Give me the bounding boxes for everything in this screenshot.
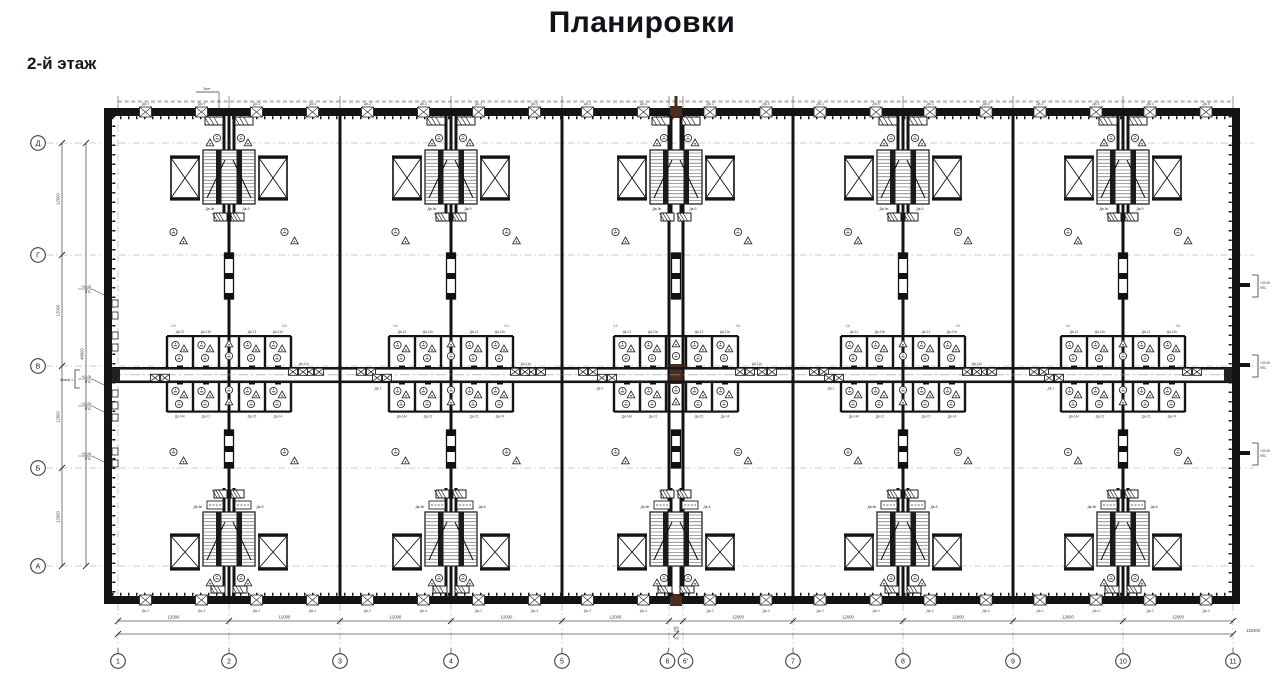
sanitary-partition — [486, 383, 488, 412]
left-bracket-label: Зумпф-1 — [60, 378, 73, 382]
sanitary-partition — [685, 336, 687, 367]
top-door-tag: Дв-5 — [1092, 102, 1099, 106]
riser-band — [672, 273, 681, 279]
room-tag-circle-icon — [492, 387, 499, 394]
room-tag-circle-icon — [921, 400, 928, 407]
category-triangle-icon — [880, 345, 888, 352]
hatched-box — [453, 490, 466, 498]
hatched-box — [214, 213, 227, 221]
sanitary-partition — [440, 336, 442, 367]
sanitary-wall-top — [1061, 335, 1185, 337]
category-triangle-icon — [699, 345, 707, 352]
category-triangle-icon — [854, 457, 862, 464]
left-wall-niche — [112, 300, 118, 307]
triangle-dot — [450, 402, 452, 404]
triangle-dot — [209, 143, 211, 145]
room-tag-circle-icon — [244, 341, 251, 348]
room-tag-circle-icon — [495, 400, 502, 407]
column-axis-label: 10 — [1119, 659, 1127, 666]
room-tag-circle-icon — [1141, 400, 1148, 407]
category-triangle-icon — [244, 579, 252, 586]
row-axis-label: Г — [36, 253, 40, 260]
sanitary-partition — [866, 383, 868, 412]
room-tag-circle-icon — [201, 354, 208, 361]
row-bay-dimension: 12000 — [56, 193, 61, 205]
stair-door-tag: Дв-8п — [194, 505, 203, 509]
top-door-tag: Дв-3 — [584, 102, 591, 106]
left-wall-niche — [112, 414, 118, 421]
room-tag-circle-icon — [172, 341, 179, 348]
room-tag-circle-icon — [844, 228, 851, 235]
riser-band — [672, 253, 681, 259]
toilet-door-stub — [177, 366, 183, 370]
sanitary-partition — [460, 383, 462, 412]
hatched-box — [1125, 213, 1138, 221]
sanitary-partition — [912, 336, 914, 367]
toilet-door-stub — [650, 381, 656, 385]
room-tag-circle-icon — [947, 354, 954, 361]
toilet-door-stub — [275, 381, 281, 385]
lift-wall — [617, 533, 647, 536]
triangle-dot — [694, 583, 696, 585]
toilet-door-tag: Дв-12 — [876, 415, 885, 419]
lift-wall — [392, 198, 422, 201]
column-axis-label: 5 — [560, 659, 564, 666]
sanitary-partition — [238, 383, 240, 412]
sanitary-partition — [613, 336, 615, 367]
room-tag-circle-icon — [648, 354, 655, 361]
toilet-door-stub — [722, 366, 728, 370]
toilet-door-stub — [399, 381, 405, 385]
category-triangle-icon — [725, 345, 733, 352]
lift-wall — [480, 568, 510, 571]
toilet-door-tag: Дв-12 — [398, 330, 407, 334]
room-tag-circle-icon — [459, 574, 466, 581]
riser-band — [899, 430, 908, 436]
category-triangle-icon — [466, 139, 474, 146]
triangle-dot — [450, 344, 452, 346]
column-axis-label: 3 — [338, 659, 342, 666]
bay-mark: 2А — [171, 324, 176, 328]
lift-wall — [932, 568, 962, 571]
room-tag-circle-icon — [944, 341, 951, 348]
room-tag-circle-icon — [237, 574, 244, 581]
room-tag-circle-icon — [392, 448, 399, 455]
toilet-door-tag: Дв-12 — [1070, 330, 1079, 334]
triangle-dot — [702, 349, 704, 351]
triangle-dot — [694, 143, 696, 145]
level-mark-sub: 9ПС — [85, 407, 92, 411]
category-triangle-icon — [691, 139, 699, 146]
category-triangle-icon — [402, 391, 410, 398]
top-door-tag: Дв-5 — [1202, 102, 1209, 106]
room-tag-circle-icon — [1107, 574, 1114, 581]
triangle-dot — [1187, 241, 1189, 243]
room-tag-circle-icon — [170, 448, 177, 455]
lift-wall — [258, 155, 288, 158]
lift-wall — [844, 568, 874, 571]
top-door-tag: Дв-5 — [309, 102, 316, 106]
hatched-box — [888, 213, 901, 221]
toilet-door-stub — [923, 366, 929, 370]
hatched-box — [652, 117, 670, 125]
triangle-dot — [281, 395, 283, 397]
lift-wall — [844, 155, 874, 158]
bottom-door-tag: Дв-4 — [640, 609, 647, 613]
triangle-dot — [405, 241, 407, 243]
room-tag-circle-icon — [1092, 387, 1099, 394]
room-tag-circle-icon — [394, 341, 401, 348]
triangle-dot — [469, 143, 471, 145]
toilet-door-stub — [1169, 381, 1175, 385]
stair-door-tag: Дв-9 — [917, 207, 924, 211]
toilet-door-stub — [650, 366, 656, 370]
lift-wall — [1152, 533, 1182, 536]
top-door-tag: Дв-5 — [640, 102, 647, 106]
room-tag-circle-icon — [1064, 228, 1071, 235]
room-tag-circle-icon — [1167, 354, 1174, 361]
room-tag-circle-icon — [717, 341, 724, 348]
category-triangle-icon — [880, 391, 888, 398]
category-triangle-icon — [918, 579, 926, 586]
row-axis-label: В — [36, 364, 41, 371]
triangle-dot — [656, 143, 658, 145]
sanitary-partition — [639, 336, 641, 367]
toilet-door-stub — [1097, 381, 1103, 385]
category-triangle-icon — [466, 579, 474, 586]
category-triangle-icon — [291, 457, 299, 464]
joint-half-dimension: 700 — [673, 636, 679, 640]
toilet-door-tag: Дв-15 — [470, 415, 479, 419]
room-tag-circle-icon — [447, 386, 454, 393]
top-door-tag: Дв-3 — [253, 102, 260, 106]
category-triangle-icon — [428, 391, 436, 398]
category-triangle-icon — [206, 579, 214, 586]
triangle-dot — [255, 349, 257, 351]
bottom-door-tag: Дв-2 — [584, 609, 591, 613]
hatched-box — [661, 490, 674, 498]
sanitary-partition — [892, 336, 894, 367]
lift-wall — [1064, 568, 1094, 571]
room-tag-circle-icon — [844, 448, 851, 455]
riser-band — [899, 293, 908, 299]
toilet-door-tag: Дв-13 — [695, 330, 704, 334]
riser-band — [447, 430, 456, 436]
joint-axis-stub — [675, 96, 678, 108]
toilet-door-stub — [949, 366, 955, 370]
room-tag-circle-icon — [1174, 228, 1181, 235]
category-triangle-icon — [952, 391, 960, 398]
sanitary-partition — [1060, 336, 1062, 367]
toilet-door-tag: Дв-12п — [273, 330, 283, 334]
lift-wall — [392, 155, 422, 158]
sanitary-partition — [414, 336, 416, 367]
room-tag-circle-icon — [899, 386, 906, 393]
sanitary-partition — [1112, 383, 1114, 412]
category-triangle-icon — [653, 391, 661, 398]
stair-door-tag: Дв-8п — [868, 505, 877, 509]
sanitary-partition — [1158, 336, 1160, 367]
room-tag-circle-icon — [435, 134, 442, 141]
top-flag-label: Зонт — [203, 87, 211, 91]
toilet-door-stub — [877, 381, 883, 385]
toilet-door-stub — [203, 381, 209, 385]
triangle-dot — [921, 583, 923, 585]
sanitary-partition — [166, 383, 168, 412]
bottom-door-tag: Дв-4 — [1202, 609, 1209, 613]
lift-wall — [170, 568, 200, 571]
room-tag-circle-icon — [849, 354, 856, 361]
category-triangle-icon — [428, 579, 436, 586]
bottom-door-tag: Дв-2 — [1036, 609, 1043, 613]
toilet-door-tag: Дв-13 — [922, 330, 931, 334]
triangle-dot — [516, 241, 518, 243]
room-tag-circle-icon — [270, 387, 277, 394]
toilet-door-tag: Дв-14п — [622, 415, 632, 419]
bottom-door-tag: Дв-4 — [1092, 609, 1099, 613]
sanitary-partition — [512, 336, 514, 367]
sanitary-wall-top — [841, 335, 965, 337]
toilet-door-stub — [1097, 366, 1103, 370]
bottom-door-tag: Дв-2 — [926, 609, 933, 613]
category-triangle-icon — [1119, 398, 1127, 405]
sanitary-wall-top — [167, 335, 291, 337]
category-triangle-icon — [206, 139, 214, 146]
toilet-door-stub — [851, 381, 857, 385]
triangle-dot — [630, 395, 632, 397]
hatched-box — [214, 490, 227, 498]
toilet-door-tag: Дв-12 — [176, 330, 185, 334]
sanitary-partition — [1184, 383, 1186, 412]
category-triangle-icon — [1074, 457, 1082, 464]
category-triangle-icon — [854, 237, 862, 244]
sanitary-partition — [840, 336, 842, 367]
corridor-door-tag: Дв-1 — [828, 387, 835, 391]
stair-module-top: Дв-9пДв-9 — [617, 116, 735, 299]
category-triangle-icon — [1146, 391, 1154, 398]
bottom-door-tag: Дв-2 — [475, 609, 482, 613]
toilet-door-stub — [497, 381, 503, 385]
room-tag-circle-icon — [619, 387, 626, 394]
lift-wall — [480, 198, 510, 201]
room-tag-circle-icon — [672, 386, 679, 393]
category-triangle-icon — [1100, 139, 1108, 146]
category-triangle-icon — [627, 391, 635, 398]
room-tag-circle-icon — [469, 400, 476, 407]
bay-mark: 2А — [956, 324, 961, 328]
category-triangle-icon — [926, 391, 934, 398]
top-door-tag: Дв-3 — [706, 102, 713, 106]
triangle-dot — [625, 241, 627, 243]
category-triangle-icon — [1146, 345, 1154, 352]
top-door-tag: Дв-5 — [531, 102, 538, 106]
toilet-door-stub — [471, 366, 477, 370]
total-height-dimension: 48000 — [80, 348, 85, 360]
room-tag-circle-icon — [1119, 386, 1126, 393]
corridor-end-door-left — [112, 368, 120, 382]
hatched-box — [682, 117, 700, 125]
room-tag-circle-icon — [918, 387, 925, 394]
room-tag-circle-icon — [503, 228, 510, 235]
toilet-door-stub — [249, 366, 255, 370]
left-wall-niche — [112, 390, 118, 397]
riser-band — [672, 462, 681, 468]
hatched-box — [205, 117, 223, 125]
room-tag-circle-icon — [213, 134, 220, 141]
category-triangle-icon — [513, 457, 521, 464]
category-triangle-icon — [880, 579, 888, 586]
riser-band — [225, 273, 234, 279]
riser-band — [1119, 293, 1128, 299]
level-mark-sub: 9ПС — [1260, 366, 1267, 370]
room-tag-circle-icon — [1069, 354, 1076, 361]
toilet-door-stub — [877, 366, 883, 370]
room-tag-circle-icon — [720, 400, 727, 407]
triangle-dot — [921, 143, 923, 145]
category-triangle-icon — [244, 139, 252, 146]
stair-door-tag: Дв-9п — [880, 207, 889, 211]
left-wall-niche — [112, 344, 118, 351]
category-triangle-icon — [918, 139, 926, 146]
toilet-door-tag: Дв-12п — [1167, 330, 1177, 334]
room-tag-circle-icon — [918, 341, 925, 348]
row-axis-label: Б — [36, 466, 41, 473]
category-triangle-icon — [278, 391, 286, 398]
note-leader — [92, 379, 104, 385]
room-tag-circle-icon — [1092, 341, 1099, 348]
toilet-door-tag: Дв-12п — [947, 330, 957, 334]
lift-wall — [932, 533, 962, 536]
toilet-door-stub — [425, 366, 431, 370]
lift-wall — [258, 198, 288, 201]
room-tag-circle-icon — [1119, 352, 1126, 359]
toilet-door-tag: Дв-12 — [850, 330, 859, 334]
level-mark-sub: 9ПС — [1260, 286, 1267, 290]
room-tag-circle-icon — [503, 448, 510, 455]
bubble-leader — [683, 648, 686, 654]
triangle-dot — [431, 583, 433, 585]
triangle-dot — [183, 395, 185, 397]
room-tag-circle-icon — [1131, 574, 1138, 581]
hatched-box — [1099, 117, 1117, 125]
level-mark: +01,06 — [81, 285, 91, 289]
toilet-door-stub — [923, 381, 929, 385]
room-tag-circle-icon — [887, 574, 894, 581]
corridor-door-tag: Дв-11п — [299, 362, 310, 366]
note-leader — [92, 406, 104, 412]
triangle-dot — [1103, 583, 1105, 585]
room-tag-circle-icon — [691, 341, 698, 348]
toilet-door-stub — [696, 381, 702, 385]
riser-band — [899, 253, 908, 259]
triangle-dot — [209, 583, 211, 585]
category-triangle-icon — [1100, 579, 1108, 586]
room-tag-circle-icon — [420, 341, 427, 348]
sanitary-partition — [264, 383, 266, 412]
lift-wall — [617, 155, 647, 158]
bay-mark: 2А — [282, 324, 287, 328]
riser-band — [1119, 446, 1128, 452]
triangle-dot — [1141, 583, 1143, 585]
room-tag-circle-icon — [622, 354, 629, 361]
hatched-box — [436, 490, 449, 498]
riser-band — [447, 273, 456, 279]
bottom-door-tag: Дв-2 — [1146, 609, 1153, 613]
category-triangle-icon — [964, 237, 972, 244]
bay-dimension: 12000 — [732, 615, 744, 620]
room-tag-circle-icon — [201, 400, 208, 407]
toilet-door-stub — [497, 366, 503, 370]
room-tag-circle-icon — [944, 387, 951, 394]
unit-divider-wall — [339, 116, 342, 596]
room-tag-circle-icon — [684, 134, 691, 141]
room-tag-circle-icon — [1138, 387, 1145, 394]
room-tag-circle-icon — [175, 354, 182, 361]
toilet-door-tag: Дв-15 — [248, 415, 257, 419]
left-wall-niche — [112, 312, 118, 319]
riser-band — [672, 446, 681, 452]
bubble-leader — [668, 648, 670, 654]
triangle-dot — [967, 241, 969, 243]
room-tag-circle-icon — [872, 341, 879, 348]
sanitary-partition — [486, 336, 488, 367]
toilet-door-tag: Дв-12 — [623, 330, 632, 334]
right-wall-stub — [1240, 451, 1250, 455]
bottom-door-tag: Дв-2 — [253, 609, 260, 613]
room-tag-circle-icon — [612, 228, 619, 235]
lift-wall — [1064, 155, 1094, 158]
level-mark: +01,06 — [1260, 361, 1270, 365]
hatched-box — [1125, 490, 1138, 498]
lift-wall — [932, 198, 962, 201]
category-triangle-icon — [653, 345, 661, 352]
toilet-door-tag: Дв-14 — [274, 415, 283, 419]
category-triangle-icon — [474, 391, 482, 398]
left-wall-niche — [112, 332, 118, 339]
bottom-door-tag: Дв-2 — [364, 609, 371, 613]
category-triangle-icon — [653, 139, 661, 146]
sanitary-partition — [1112, 336, 1114, 367]
category-triangle-icon — [447, 398, 455, 405]
level-mark: +01,06 — [81, 452, 91, 456]
category-triangle-icon — [1119, 340, 1127, 347]
category-triangle-icon — [180, 345, 188, 352]
category-triangle-icon — [474, 345, 482, 352]
category-triangle-icon — [252, 345, 260, 352]
room-tag-circle-icon — [213, 574, 220, 581]
triangle-dot — [1122, 344, 1124, 346]
category-triangle-icon — [500, 345, 508, 352]
lift-wall — [705, 155, 735, 158]
toilet-door-stub — [471, 381, 477, 385]
category-triangle-icon — [180, 237, 188, 244]
bottom-door-tag: Дв-4 — [982, 609, 989, 613]
triangle-dot — [857, 241, 859, 243]
category-triangle-icon — [225, 398, 233, 405]
sanitary-partition — [1184, 336, 1186, 367]
room-tag-circle-icon — [198, 341, 205, 348]
triangle-dot — [469, 583, 471, 585]
sanitary-partition — [1060, 383, 1062, 412]
triangle-dot — [625, 461, 627, 463]
hatched-box — [453, 213, 466, 221]
unit-divider-wall — [561, 116, 564, 596]
triangle-dot — [857, 349, 859, 351]
level-mark: +01,06 — [1260, 449, 1270, 453]
category-triangle-icon — [744, 457, 752, 464]
riser-band — [672, 293, 681, 299]
triangle-dot — [1122, 402, 1124, 404]
